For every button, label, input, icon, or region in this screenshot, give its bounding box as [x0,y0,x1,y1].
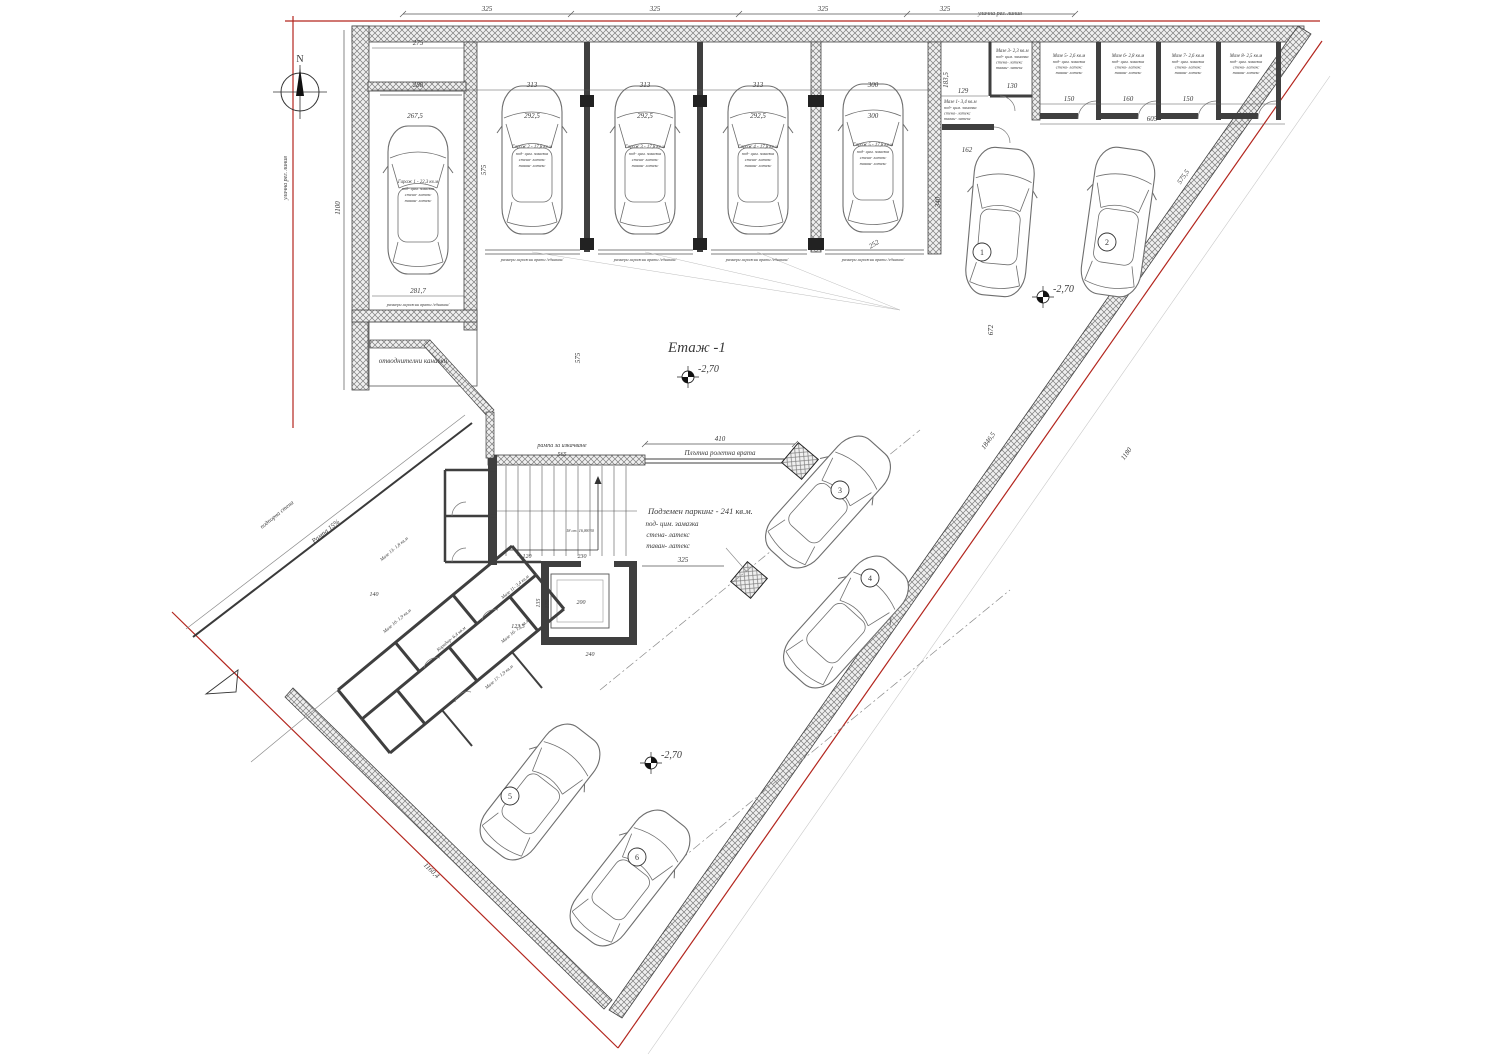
finish-line: таван- латекс [405,198,432,203]
room-label: Гараж 2 - 17,8 кв.м [511,145,552,150]
floor-plan-canvas: улична рег. линия улична рег. линия [0,0,1500,1060]
dim-label: 281,7 [410,287,426,295]
dim-label: 130 [1007,82,1018,90]
finish-line: под- цим. замазка [516,151,549,156]
dim-label: 183,5 [942,72,950,88]
dim-label: 313 [639,81,651,89]
spot-number: 4 [868,574,872,583]
spot-number: 2 [1105,238,1109,247]
dim-label: 1160,4 [422,861,441,880]
dim-label: 325 [677,556,689,564]
spot-number: 1 [980,248,984,257]
dim-label: 325 [481,5,493,13]
dim-label: 135 [536,599,542,608]
finish-line: таван- латекс [646,542,690,550]
finish-line: стена- латекс [632,157,659,162]
dim-label: 1180 [1119,446,1134,462]
dim-label: 240 [586,651,595,658]
room-label: Гараж 1 - 22,3 кв.м [397,180,438,185]
dim-label: 170 [545,600,551,609]
finish-line: стена- латекс [1056,65,1083,70]
dim-label: 200 [577,600,586,606]
entry-and-columns [370,340,818,598]
room-label: Мазе 11- 3,4 кв.м [500,575,530,602]
reg-line-left-label: улична рег. линия [283,156,289,201]
parking-note: Подземен паркинг - 241 кв.м. под- цим. з… [642,506,753,572]
room-label: Гараж 3 - 17,8 кв.м [624,145,665,150]
finish-line: стена- латекс [944,111,971,116]
finish-line: стена- латекс [745,157,772,162]
finish-line: под- цим. замазка [1053,59,1086,64]
finish-line: под- цим. замазка [857,149,890,154]
storage-wing [338,546,564,753]
ramp-up-dim: 565 [558,452,567,458]
finish-line: таван- латекс [944,116,971,121]
dim-label: 292,5 [750,112,766,120]
finish-line: под- цим. замазка [742,151,775,156]
finish-line: стена- латекс [1175,65,1202,70]
dim-label: 140 [370,591,379,598]
room-label: Гараж 4 - 17,8 кв.м [737,145,778,150]
roller-door-note: Плътна ролетна врата [683,449,756,457]
dim-label: 150 [1064,95,1075,103]
finish-line: стена- латекс [1233,65,1260,70]
garage-door-note: размери гаражни врати /еднакви/ [841,257,905,262]
finish-line: стена- латекс [996,60,1023,65]
dim-label: 230 [578,554,587,560]
finish-line: под- цим. замазка [629,151,662,156]
dim-label: 340 [934,196,942,208]
dim-label: 267,5 [407,112,423,120]
room-label: Мазе 17- 1,9 кв.м [484,664,515,691]
north-arrow: N [273,54,327,119]
elevation-value: -2,70 [1053,284,1074,295]
finish-line: таван- латекс [860,161,887,166]
finish-line: под- цим. замазка [645,520,699,528]
garage-door-note: размери гаражни врати /еднакви/ [613,257,677,262]
dim-label: 252 [867,238,881,251]
dim-label: 129 [958,87,969,95]
ramp-up-note: рампа за изкачване [536,443,586,449]
elevation-value: -2,70 [698,364,719,375]
drainage-note: отводнителни канавки [379,357,448,365]
spot-number: 5 [508,792,512,801]
finish-line: под- цим. замазка [944,105,977,110]
garage-door-note: размери гаражни врати /еднакви/ [386,302,450,307]
dim-label: 575 [574,352,582,363]
dim-label: 1846,5 [980,430,998,451]
garage-door-note: размери гаражни врати /еднакви/ [725,257,789,262]
finish-line: стена- латекс [519,157,546,162]
finish-line: под- цим. замазка [402,186,435,191]
dim-label: 150 [1183,95,1194,103]
dim-label: 575 [480,164,488,175]
dim-label: 162 [962,146,973,154]
room-label: Мазе 13- 1,8 кв.м [379,536,410,563]
dim-label: 292,5 [524,112,540,120]
north-label: N [296,54,303,65]
finish-line: таван- латекс [1115,70,1142,75]
finish-line: таван- латекс [745,163,772,168]
storage-wing-labels: Мазе 13- 1,8 кв.м Мазе 11- 3,4 кв.м Мазе… [379,536,531,691]
ramp [186,415,512,762]
parking-title: Подземен паркинг - 241 кв.м. [647,506,753,516]
floor-title: Етаж -1 [667,340,726,356]
dim-label: 123,3 [511,624,525,630]
finish-line: стена- латекс [405,192,432,197]
dim-label: 292,5 [637,112,653,120]
finish-line: под- цим. замазка [996,54,1029,59]
dim-label: 288 [413,81,424,89]
dim-label: 605 [1147,115,1158,123]
dim-label: 160 [1123,95,1134,103]
finish-line: под- цим. замазка [1172,59,1205,64]
dim-label: 120 [523,554,532,560]
dim-label: 325 [649,5,661,13]
dim-label: 313 [526,81,538,89]
finish-line: стена- латекс [860,155,887,160]
finish-line: таван- латекс [1056,70,1083,75]
dim-label: 325 [939,5,951,13]
floor-plan-page: улична рег. линия улична рег. линия [0,0,1500,1060]
dim-label: 1100 [334,201,342,215]
finish-line: стена- латекс [1115,65,1142,70]
dim-label: 313 [752,81,764,89]
room-label: Гараж 5 - 17,8 кв.м [852,143,893,148]
finish-line: таван- латекс [519,163,546,168]
finish-line: таван- латекс [1175,70,1202,75]
finish-line: под- цим. замазка [1112,59,1145,64]
dim-label: 672 [987,324,995,335]
garage-door-note: размери гаражни врати /еднакви/ [500,257,564,262]
spot-number: 3 [838,486,842,495]
dim-label: 325 [817,5,829,13]
dim-label: 300 [867,112,879,120]
finish-line: стена- латекс [646,531,690,539]
dim-label: 275 [413,39,424,47]
finish-line: под- цим. замазка [1230,59,1263,64]
stair-elevator-core [445,455,645,645]
finish-line: таван- латекс [996,65,1023,70]
retaining-wall-note: подпорна стена [259,499,295,530]
elevation-value: -2,70 [661,750,682,761]
dim-label: 410 [715,435,726,443]
dim-label: 300 [867,81,879,89]
finish-line: таван- латекс [1233,70,1260,75]
stairs-note: 18 ст. 16,88/30 [566,528,595,534]
spot-number: 6 [635,853,639,862]
finish-line: таван- латекс [632,163,659,168]
